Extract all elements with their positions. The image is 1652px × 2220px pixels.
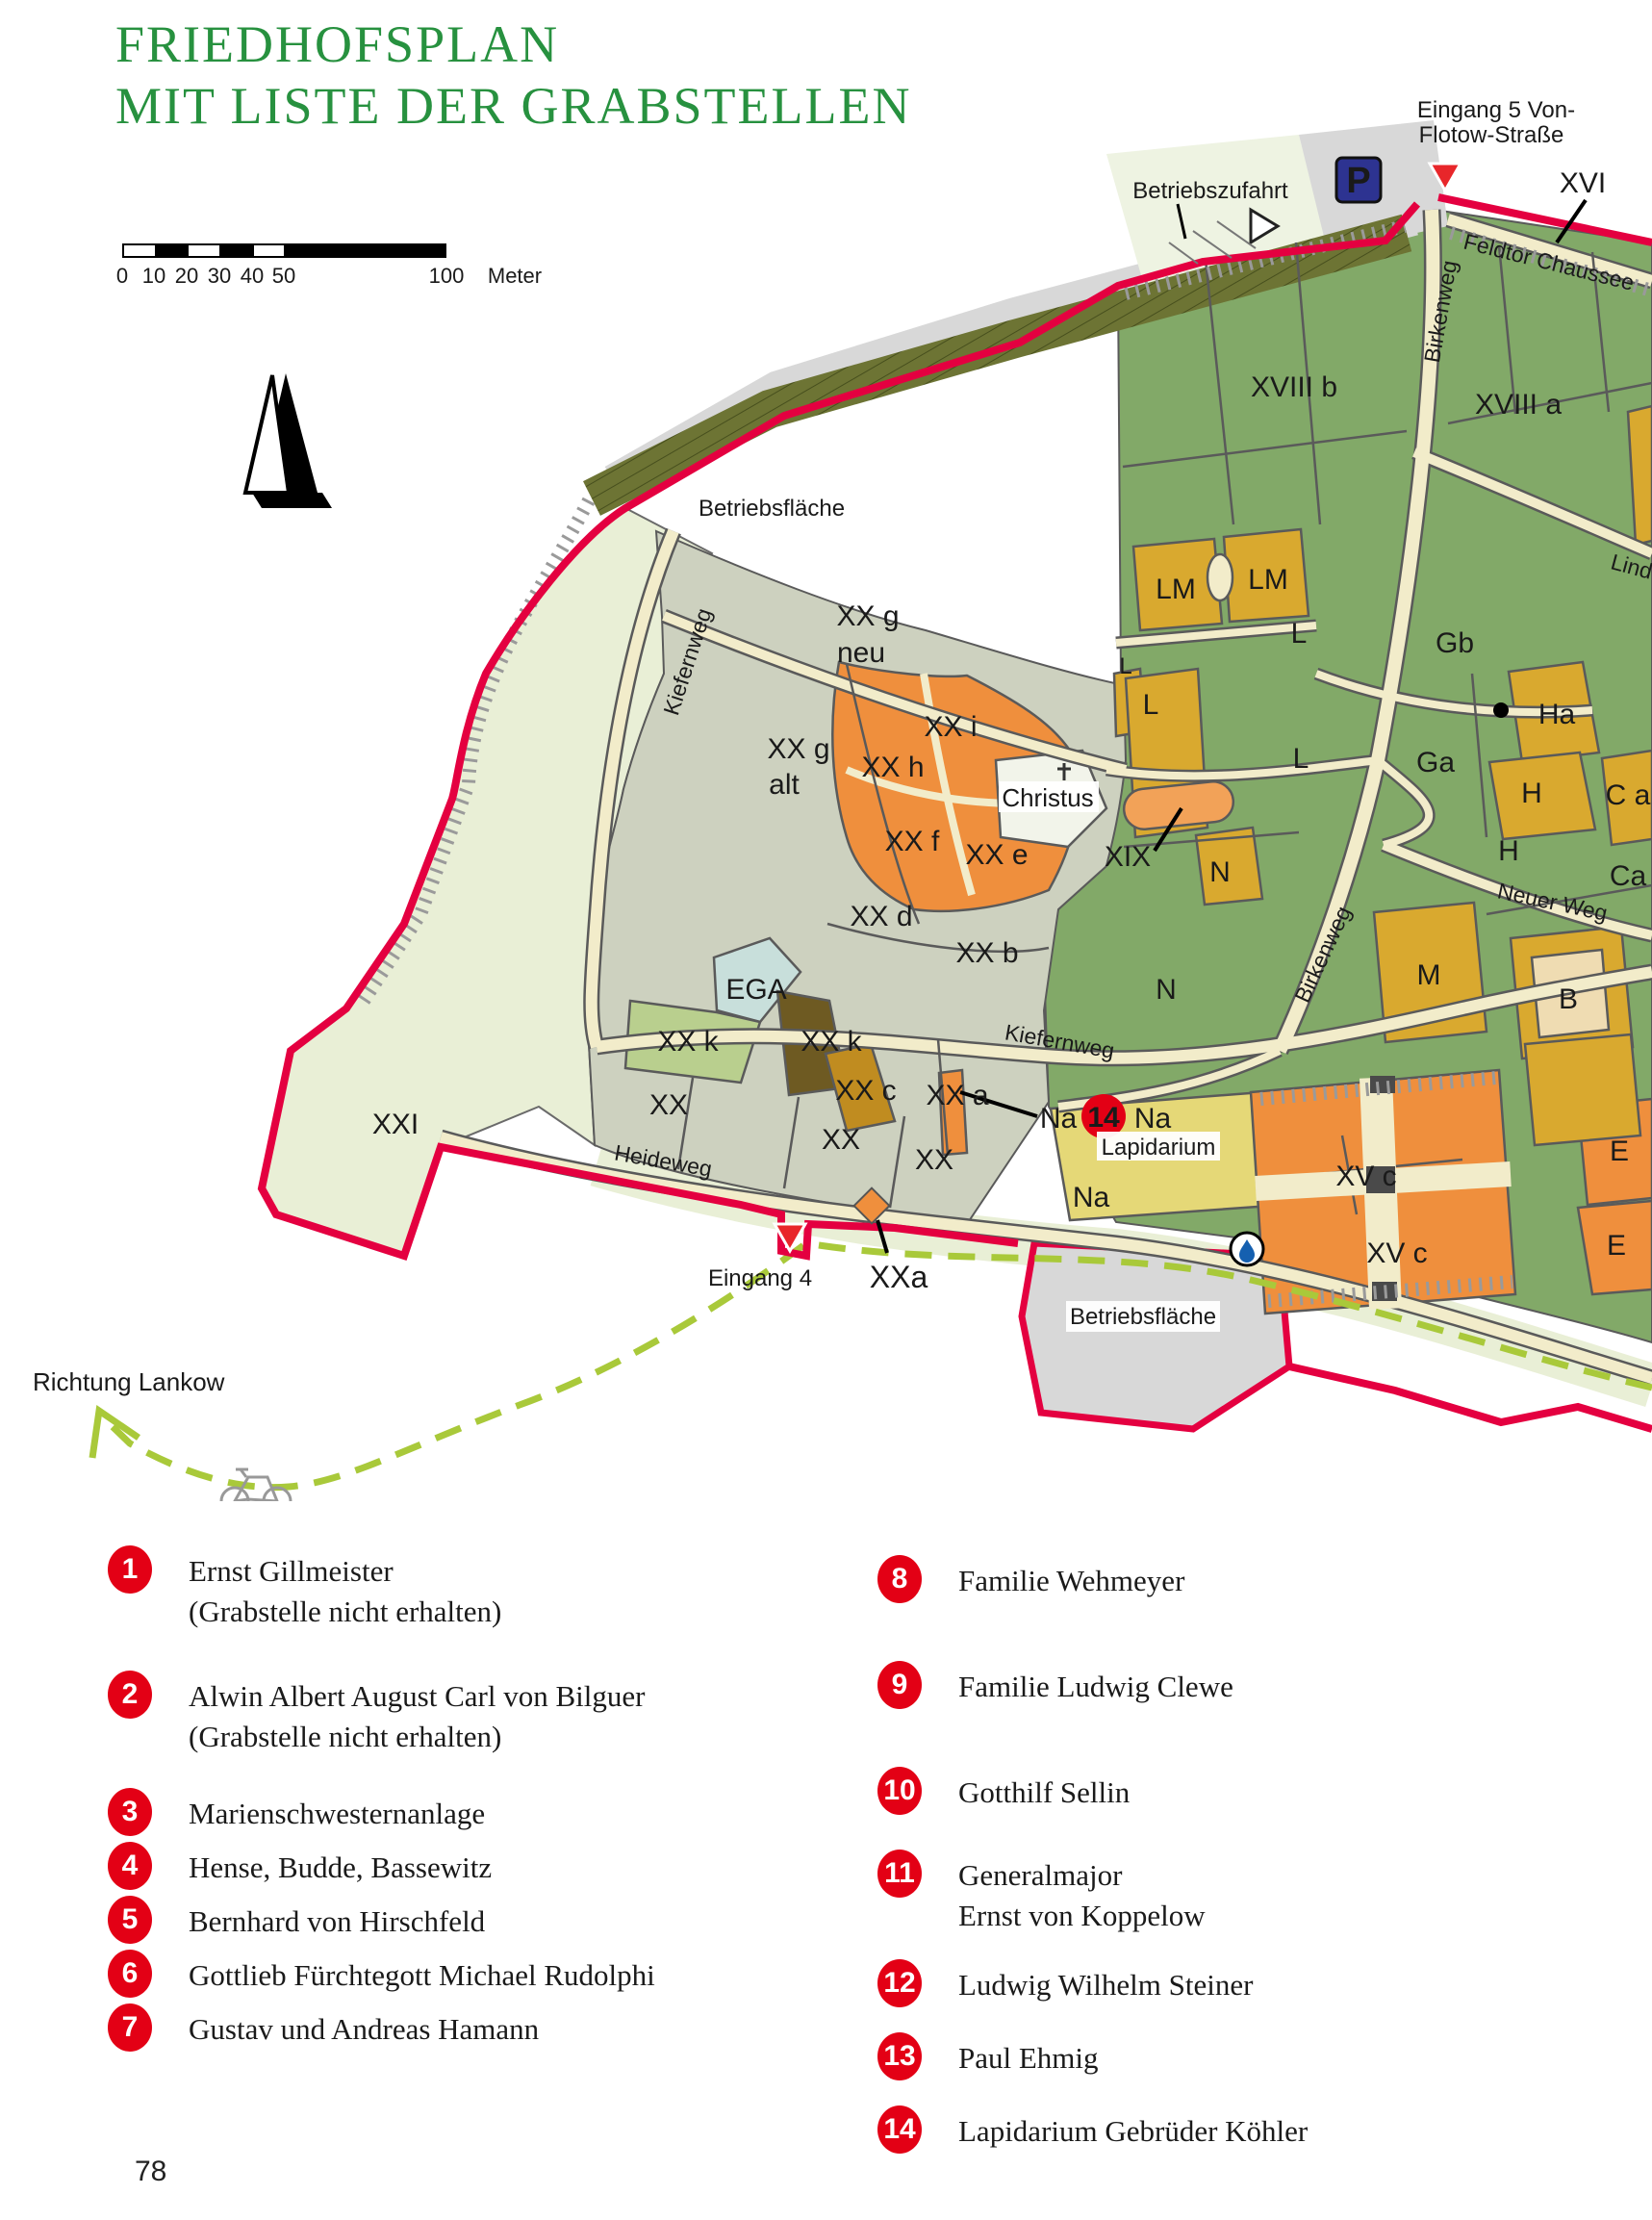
label-betriebszufahrt: Betriebszufahrt xyxy=(1132,178,1288,204)
label-xxi: XXI xyxy=(372,1109,419,1140)
label-betriebsflaeche-bottom: Betriebsfläche xyxy=(1070,1304,1216,1330)
label-ca: Ca xyxy=(1610,860,1647,892)
label-lm-1: LM xyxy=(1156,574,1196,605)
legend-badge-8: 8 xyxy=(877,1555,922,1603)
legend-badge-5: 5 xyxy=(108,1896,152,1944)
legend-item-4: 4 Hense, Budde, Bassewitz xyxy=(108,1848,492,1890)
legend-item-2: 2 Alwin Albert August Carl von Bilguer(G… xyxy=(108,1676,645,1757)
legend-item-1: 1 Ernst Gillmeister(Grabstelle nicht erh… xyxy=(108,1551,501,1632)
label-h-1: H xyxy=(1521,778,1542,809)
label-xx-1: XX xyxy=(649,1089,688,1121)
label-eingang5-2: Flotow-Straße xyxy=(1419,122,1564,148)
legend-badge-2: 2 xyxy=(108,1671,152,1719)
page: FRIEDHOFSPLAN MIT LISTE DER GRABSTELLEN … xyxy=(0,0,1652,2220)
legend-badge-9: 9 xyxy=(877,1661,922,1709)
label-xxg-alt-1: XX g xyxy=(767,733,829,765)
label-xviii-b: XVIII b xyxy=(1251,371,1337,403)
label-xx-i: XX i xyxy=(924,711,977,743)
parking-icon: P xyxy=(1336,158,1381,202)
label-xvi: XVI xyxy=(1560,167,1606,199)
legend-badge-1: 1 xyxy=(108,1545,152,1594)
label-h-2: H xyxy=(1498,835,1519,867)
label-n-1: N xyxy=(1209,856,1231,888)
legend-text: Lapidarium Gebrüder Köhler xyxy=(958,2111,1308,2152)
section-lm-oval xyxy=(1207,554,1233,600)
label-xvc-2: XV c xyxy=(1366,1238,1427,1269)
legend-text: Gotthilf Sellin xyxy=(958,1773,1130,1813)
label-xx-f: XX f xyxy=(885,826,940,857)
label-l-4: L xyxy=(1293,743,1309,775)
legend-item-10: 10 Gotthilf Sellin xyxy=(877,1773,1130,1815)
legend-text: Generalmajor xyxy=(958,1855,1206,1896)
legend-item-3: 3 Marienschwesternanlage xyxy=(108,1794,485,1836)
label-l-1: L xyxy=(1291,618,1308,650)
legend-badge-3: 3 xyxy=(108,1788,152,1836)
label-xvc-1: XV c xyxy=(1335,1161,1396,1192)
legend-text: Alwin Albert August Carl von Bilguer xyxy=(189,1676,645,1717)
legend-item-5: 5 Bernhard von Hirschfeld xyxy=(108,1901,485,1944)
label-xx-c: XX c xyxy=(835,1075,896,1107)
legend-item-6: 6 Gottlieb Fürchtegott Michael Rudolphi xyxy=(108,1955,655,1998)
label-lm-2: LM xyxy=(1248,564,1288,596)
label-b: B xyxy=(1559,983,1578,1015)
legend-item-14: 14 Lapidarium Gebrüder Köhler xyxy=(877,2111,1308,2154)
legend-text: (Grabstelle nicht erhalten) xyxy=(189,1592,501,1632)
legend-badge-11: 11 xyxy=(877,1850,922,1898)
label-ga: Ga xyxy=(1416,747,1455,778)
label-xx-a: XX a xyxy=(926,1080,988,1111)
label-ega: EGA xyxy=(725,974,786,1006)
label-xxg-alt-2: alt xyxy=(769,769,800,801)
label-eingang5-1: Eingang 5 Von- xyxy=(1417,97,1575,123)
junction-dot xyxy=(1493,702,1509,718)
legend-badge-4: 4 xyxy=(108,1842,152,1890)
legend-badge-14: 14 xyxy=(877,2105,922,2154)
label-eingang4: Eingang 4 xyxy=(708,1265,812,1291)
legend-text: Hense, Budde, Bassewitz xyxy=(189,1848,492,1888)
label-xx-e: XX e xyxy=(965,839,1028,871)
bike-path-arrow xyxy=(92,1411,139,1458)
label-xx-b: XX b xyxy=(955,937,1018,969)
label-e-2: E xyxy=(1607,1230,1626,1262)
label-ha: Ha xyxy=(1538,699,1576,730)
legend-text: Familie Ludwig Clewe xyxy=(958,1667,1233,1707)
legend-badge-13: 13 xyxy=(877,2032,922,2080)
legend-item-7: 7 Gustav und Andreas Hamann xyxy=(108,2009,539,2052)
marker-14-number: 14 xyxy=(1087,1102,1120,1134)
legend-badge-10: 10 xyxy=(877,1767,922,1815)
label-xx-k2: XX k xyxy=(801,1026,862,1058)
legend-text: Ernst von Koppelow xyxy=(958,1896,1206,1936)
label-xxg-neu-2: neu xyxy=(837,637,885,669)
parking-letter: P xyxy=(1346,161,1370,201)
legend-text: Paul Ehmig xyxy=(958,2038,1099,2079)
label-na-2: Na xyxy=(1134,1103,1172,1135)
legend-text: Bernhard von Hirschfeld xyxy=(189,1901,485,1942)
legend-item-8: 8 Familie Wehmeyer xyxy=(877,1561,1184,1603)
label-xx-h: XX h xyxy=(861,752,924,783)
label-xxa: XXa xyxy=(870,1260,928,1294)
legend-text: Ludwig Wilhelm Steiner xyxy=(958,1965,1253,2005)
label-xix: XIX xyxy=(1105,841,1151,873)
legend-badge-6: 6 xyxy=(108,1950,152,1998)
label-l-2: L xyxy=(1119,653,1131,679)
north-arrow xyxy=(245,373,332,508)
label-m: M xyxy=(1417,959,1441,991)
legend-badge-12: 12 xyxy=(877,1959,922,2007)
legend-text: Ernst Gillmeister xyxy=(189,1551,501,1592)
legend-item-13: 13 Paul Ehmig xyxy=(877,2038,1099,2080)
legend-badge-7: 7 xyxy=(108,2003,152,2052)
legend-item-12: 12 Ludwig Wilhelm Steiner xyxy=(877,1965,1253,2007)
label-e-1: E xyxy=(1610,1136,1629,1167)
legend-text: Familie Wehmeyer xyxy=(958,1561,1184,1601)
legend-text: Marienschwesternanlage xyxy=(189,1794,485,1834)
cemetery-map: P xyxy=(0,0,1652,1501)
page-number: 78 xyxy=(135,2156,166,2188)
legend-item-9: 9 Familie Ludwig Clewe xyxy=(877,1667,1233,1709)
label-xviii-a: XVIII a xyxy=(1475,389,1562,421)
label-na-3: Na xyxy=(1073,1182,1110,1213)
label-betriebsflaeche-top: Betriebsfläche xyxy=(699,496,845,522)
legend-item-11: 11 GeneralmajorErnst von Koppelow xyxy=(877,1855,1206,1936)
legend-text: Gottlieb Fürchtegott Michael Rudolphi xyxy=(189,1955,655,1996)
legend-text: Gustav und Andreas Hamann xyxy=(189,2009,539,2050)
section-h xyxy=(1489,753,1595,839)
label-c-a: C a xyxy=(1606,779,1651,811)
label-n-2: N xyxy=(1156,974,1177,1006)
label-xx-3: XX xyxy=(915,1144,953,1176)
label-xx-2: XX xyxy=(822,1124,860,1156)
label-gb: Gb xyxy=(1436,627,1474,659)
label-xx-d: XX d xyxy=(850,901,912,932)
label-richtung-lankow: Richtung Lankow xyxy=(33,1367,225,1396)
label-xx-k1: XX k xyxy=(657,1026,719,1058)
label-lapidarium: Lapidarium xyxy=(1102,1135,1216,1161)
label-xxg-neu-1: XX g xyxy=(836,600,899,632)
legend-text: (Grabstelle nicht erhalten) xyxy=(189,1717,645,1757)
label-na-1: Na xyxy=(1040,1103,1078,1135)
section-gold-right-mid xyxy=(1525,1034,1640,1145)
label-christus: Christus xyxy=(1002,783,1093,812)
water-icon xyxy=(1231,1233,1263,1265)
label-l-3: L xyxy=(1143,689,1159,721)
